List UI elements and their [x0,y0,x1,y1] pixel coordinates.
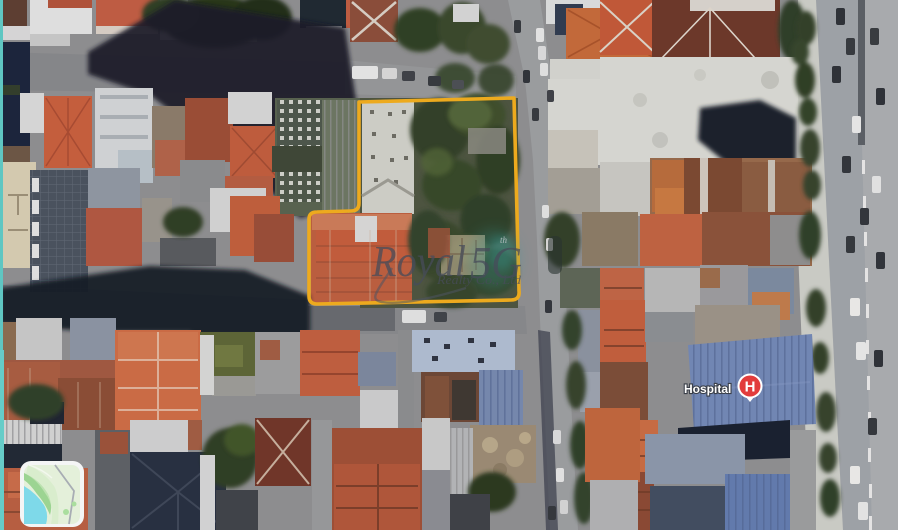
svg-text:Hospital: Hospital [684,382,731,396]
svg-text:th: th [500,235,508,245]
svg-text:Realty Co., Ltd: Realty Co., Ltd [436,272,522,287]
svg-text:H: H [745,379,756,396]
